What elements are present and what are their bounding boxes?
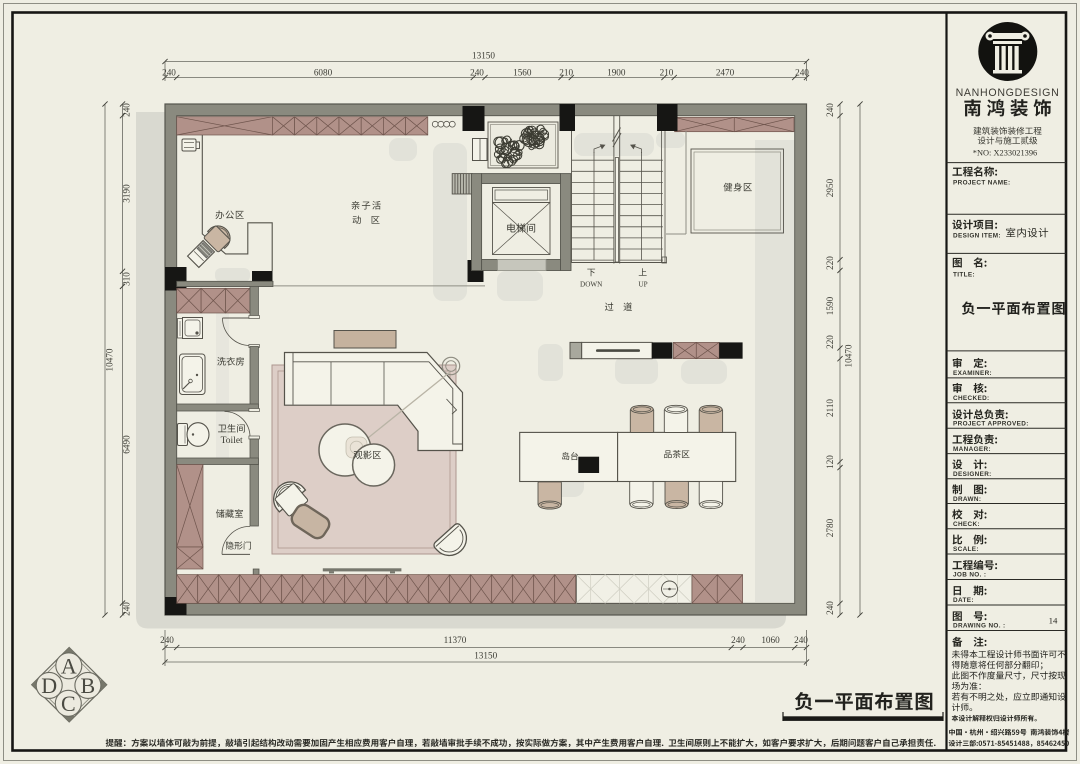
svg-text:JOB NO. :: JOB NO. : — [953, 572, 986, 579]
svg-text:MANAGER:: MANAGER: — [953, 446, 991, 453]
svg-text:UP: UP — [638, 280, 647, 288]
svg-text:EXAMINER:: EXAMINER: — [953, 370, 992, 377]
svg-text:240: 240 — [825, 103, 835, 117]
svg-text:6080: 6080 — [314, 67, 333, 77]
svg-text:1560: 1560 — [513, 67, 532, 77]
svg-text:240: 240 — [731, 635, 745, 645]
svg-text:10470: 10470 — [844, 344, 854, 367]
svg-text:*NO: X233021396: *NO: X233021396 — [973, 148, 1037, 157]
svg-text:PROJECT NAME:: PROJECT NAME: — [953, 180, 1010, 187]
svg-text:240: 240 — [122, 103, 132, 117]
svg-text:1590: 1590 — [825, 296, 835, 315]
svg-text:13150: 13150 — [474, 651, 497, 661]
svg-text:NANHONGDESIGN: NANHONGDESIGN — [956, 87, 1060, 99]
svg-text:3190: 3190 — [122, 184, 132, 203]
svg-text:240: 240 — [162, 67, 176, 77]
svg-text:240: 240 — [795, 67, 809, 77]
svg-text:310: 310 — [122, 272, 132, 286]
svg-text:DATE:: DATE: — [953, 597, 974, 604]
svg-text:TITLE:: TITLE: — [953, 272, 975, 279]
svg-text:C: C — [61, 691, 76, 716]
svg-text:2950: 2950 — [825, 178, 835, 197]
svg-text:10470: 10470 — [105, 348, 115, 371]
svg-text:6490: 6490 — [122, 435, 132, 454]
svg-text:240: 240 — [470, 67, 484, 77]
svg-text:Toilet: Toilet — [221, 436, 243, 446]
svg-text:DOWN: DOWN — [580, 280, 603, 288]
svg-text:240: 240 — [160, 635, 174, 645]
svg-text:CHECKED:: CHECKED: — [953, 395, 990, 402]
svg-text:220: 220 — [825, 335, 835, 349]
svg-text:1060: 1060 — [761, 635, 780, 645]
svg-text:DRAWN:: DRAWN: — [953, 496, 981, 503]
svg-text:2110: 2110 — [825, 399, 835, 417]
svg-text:210: 210 — [559, 67, 573, 77]
svg-text:240: 240 — [122, 602, 132, 616]
svg-text:2780: 2780 — [825, 518, 835, 537]
svg-text:A: A — [61, 654, 77, 679]
svg-text:1900: 1900 — [607, 67, 626, 77]
svg-text:PROJECT APPROVED:: PROJECT APPROVED: — [953, 420, 1029, 427]
svg-text:2470: 2470 — [716, 67, 735, 77]
svg-text:210: 210 — [660, 67, 674, 77]
svg-text:13150: 13150 — [472, 51, 495, 61]
svg-text:120: 120 — [825, 455, 835, 469]
svg-text:220: 220 — [825, 256, 835, 270]
svg-text:SCALE:: SCALE: — [953, 546, 979, 553]
svg-text:DESIGN ITEM:: DESIGN ITEM: — [953, 233, 1001, 240]
svg-text:240: 240 — [794, 635, 808, 645]
svg-text:240: 240 — [825, 601, 835, 615]
svg-text:CHECK:: CHECK: — [953, 521, 980, 528]
svg-text:DRAWING NO. :: DRAWING NO. : — [953, 623, 1005, 630]
svg-text:14: 14 — [1049, 616, 1058, 626]
svg-text:D: D — [41, 673, 57, 698]
svg-text:B: B — [81, 673, 96, 698]
svg-text:DESIGNER:: DESIGNER: — [953, 471, 992, 478]
svg-text:11370: 11370 — [444, 635, 467, 645]
